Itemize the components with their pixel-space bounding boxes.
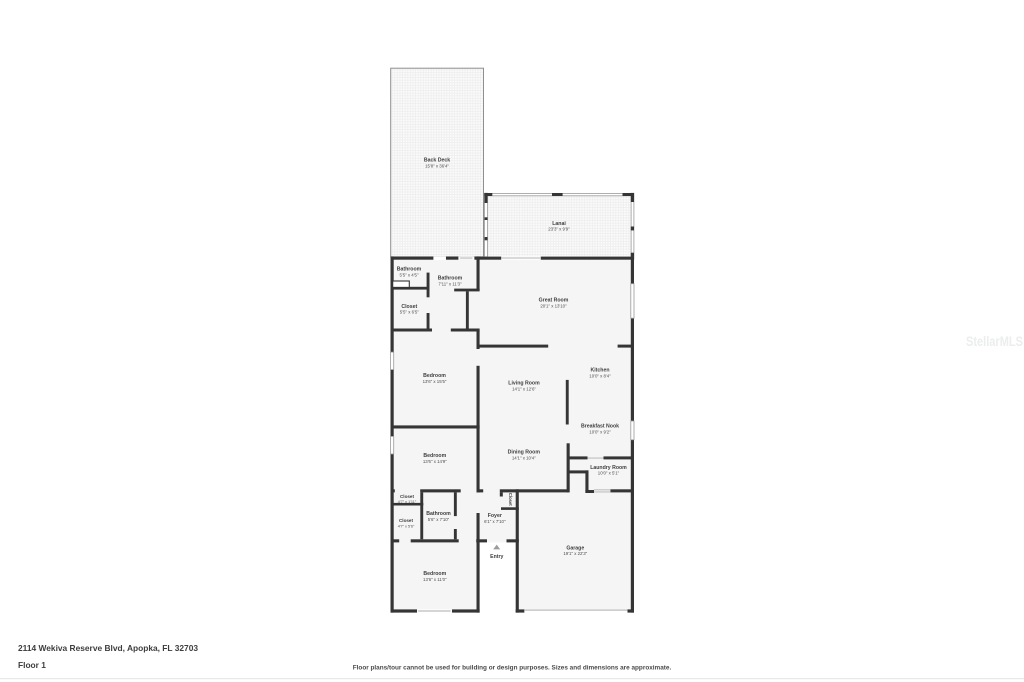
svg-text:Floor plans/tour cannot be use: Floor plans/tour cannot be used for buil… [353,665,672,672]
svg-text:2114 Wekiva Reserve Blvd, Apop: 2114 Wekiva Reserve Blvd, Apopka, FL 327… [18,643,198,653]
svg-text:7'11" x 11'3": 7'11" x 11'3" [438,281,462,286]
svg-text:13'6" x 11'0": 13'6" x 11'0" [423,577,447,582]
svg-text:20'1" x 13'10": 20'1" x 13'10" [540,303,567,308]
svg-text:19'1" x 22'3": 19'1" x 22'3" [563,551,587,556]
svg-text:5'5" x 6'5": 5'5" x 6'5" [400,310,419,315]
svg-text:4'7" x 1'11": 4'7" x 1'11" [398,500,417,504]
svg-text:10'0" x 5'1": 10'0" x 5'1" [598,470,620,475]
svg-text:Closet: Closet [508,493,513,506]
svg-text:13'6" x 14'9": 13'6" x 14'9" [423,459,447,464]
svg-text:15'8" x 36'4": 15'8" x 36'4" [425,163,449,168]
svg-text:10'0" x 8'4": 10'0" x 8'4" [589,374,611,379]
svg-text:5'6" x 7'10": 5'6" x 7'10" [428,517,450,522]
svg-text:4'7" x 5'6": 4'7" x 5'6" [398,524,415,528]
svg-text:10'0" x 9'2": 10'0" x 9'2" [589,429,611,434]
svg-text:14'1" x 12'6": 14'1" x 12'6" [512,386,536,391]
svg-text:5'5" x 4'5": 5'5" x 4'5" [400,272,419,277]
svg-text:Closet: Closet [400,494,415,499]
svg-text:13'6" x 15'5": 13'6" x 15'5" [423,379,447,384]
svg-text:StellarMLS: StellarMLS [966,333,1023,349]
svg-text:23'3" x 9'9": 23'3" x 9'9" [548,226,570,231]
svg-text:14'1" x 10'4": 14'1" x 10'4" [512,455,536,460]
svg-text:6'1" x 7'10": 6'1" x 7'10" [484,519,506,524]
svg-text:Entry: Entry [490,554,503,560]
svg-text:Closet: Closet [399,518,414,523]
svg-text:Floor 1: Floor 1 [18,660,46,670]
